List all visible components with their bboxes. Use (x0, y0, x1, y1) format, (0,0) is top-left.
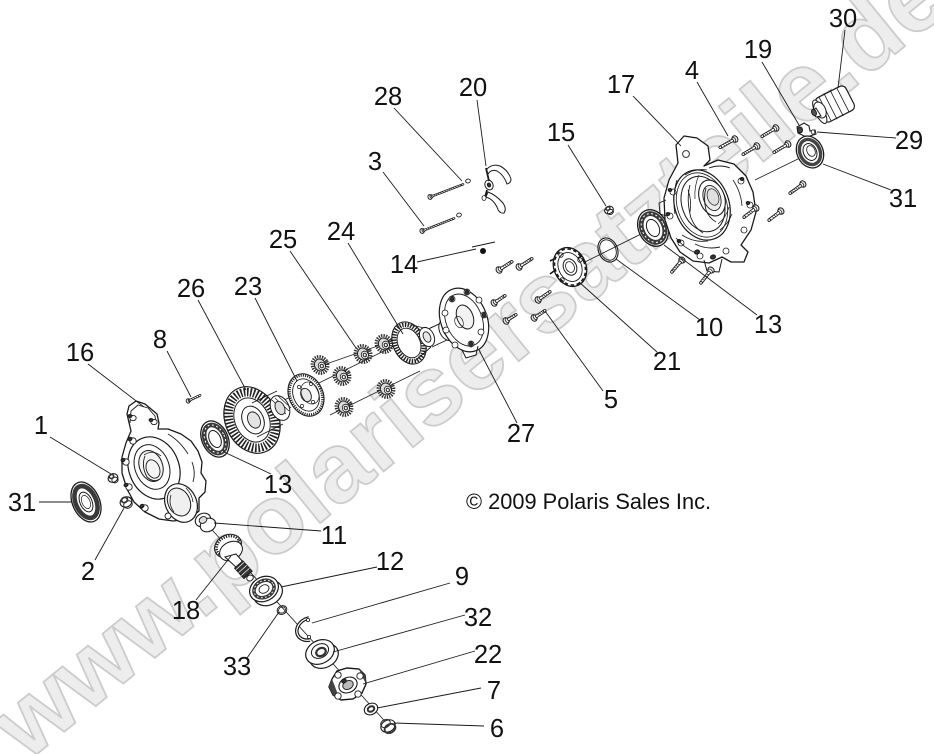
svg-text:1: 1 (34, 412, 48, 440)
svg-text:8: 8 (153, 326, 167, 354)
svg-text:7: 7 (487, 677, 501, 705)
svg-text:22: 22 (474, 641, 502, 669)
svg-text:25: 25 (269, 226, 297, 254)
svg-text:12: 12 (376, 548, 404, 576)
svg-text:28: 28 (374, 83, 402, 111)
svg-text:30: 30 (829, 5, 857, 33)
svg-text:11: 11 (321, 522, 347, 550)
svg-text:9: 9 (455, 563, 469, 591)
svg-text:2: 2 (81, 558, 95, 586)
svg-text:27: 27 (507, 420, 535, 448)
svg-text:31: 31 (8, 489, 36, 517)
svg-text:29: 29 (895, 127, 923, 155)
svg-text:19: 19 (744, 36, 772, 64)
svg-text:10: 10 (695, 314, 723, 342)
svg-text:20: 20 (459, 74, 487, 102)
svg-text:18: 18 (172, 597, 200, 625)
svg-text:6: 6 (490, 715, 504, 743)
svg-text:31: 31 (889, 185, 917, 213)
svg-text:33: 33 (223, 653, 251, 681)
svg-text:15: 15 (547, 119, 575, 147)
svg-text:© 2009 Polaris Sales Inc.: © 2009 Polaris Sales Inc. (466, 489, 711, 514)
svg-text:17: 17 (607, 71, 635, 99)
svg-text:3: 3 (368, 148, 382, 176)
svg-text:13: 13 (264, 471, 292, 499)
svg-text:14: 14 (390, 251, 418, 279)
svg-text:23: 23 (234, 273, 262, 301)
svg-text:5: 5 (604, 386, 618, 414)
svg-text:13: 13 (754, 311, 782, 339)
svg-text:26: 26 (177, 275, 205, 303)
svg-text:4: 4 (685, 57, 699, 85)
svg-text:21: 21 (653, 348, 681, 376)
svg-text:24: 24 (327, 218, 355, 246)
svg-text:32: 32 (464, 604, 492, 632)
svg-text:16: 16 (66, 339, 94, 367)
